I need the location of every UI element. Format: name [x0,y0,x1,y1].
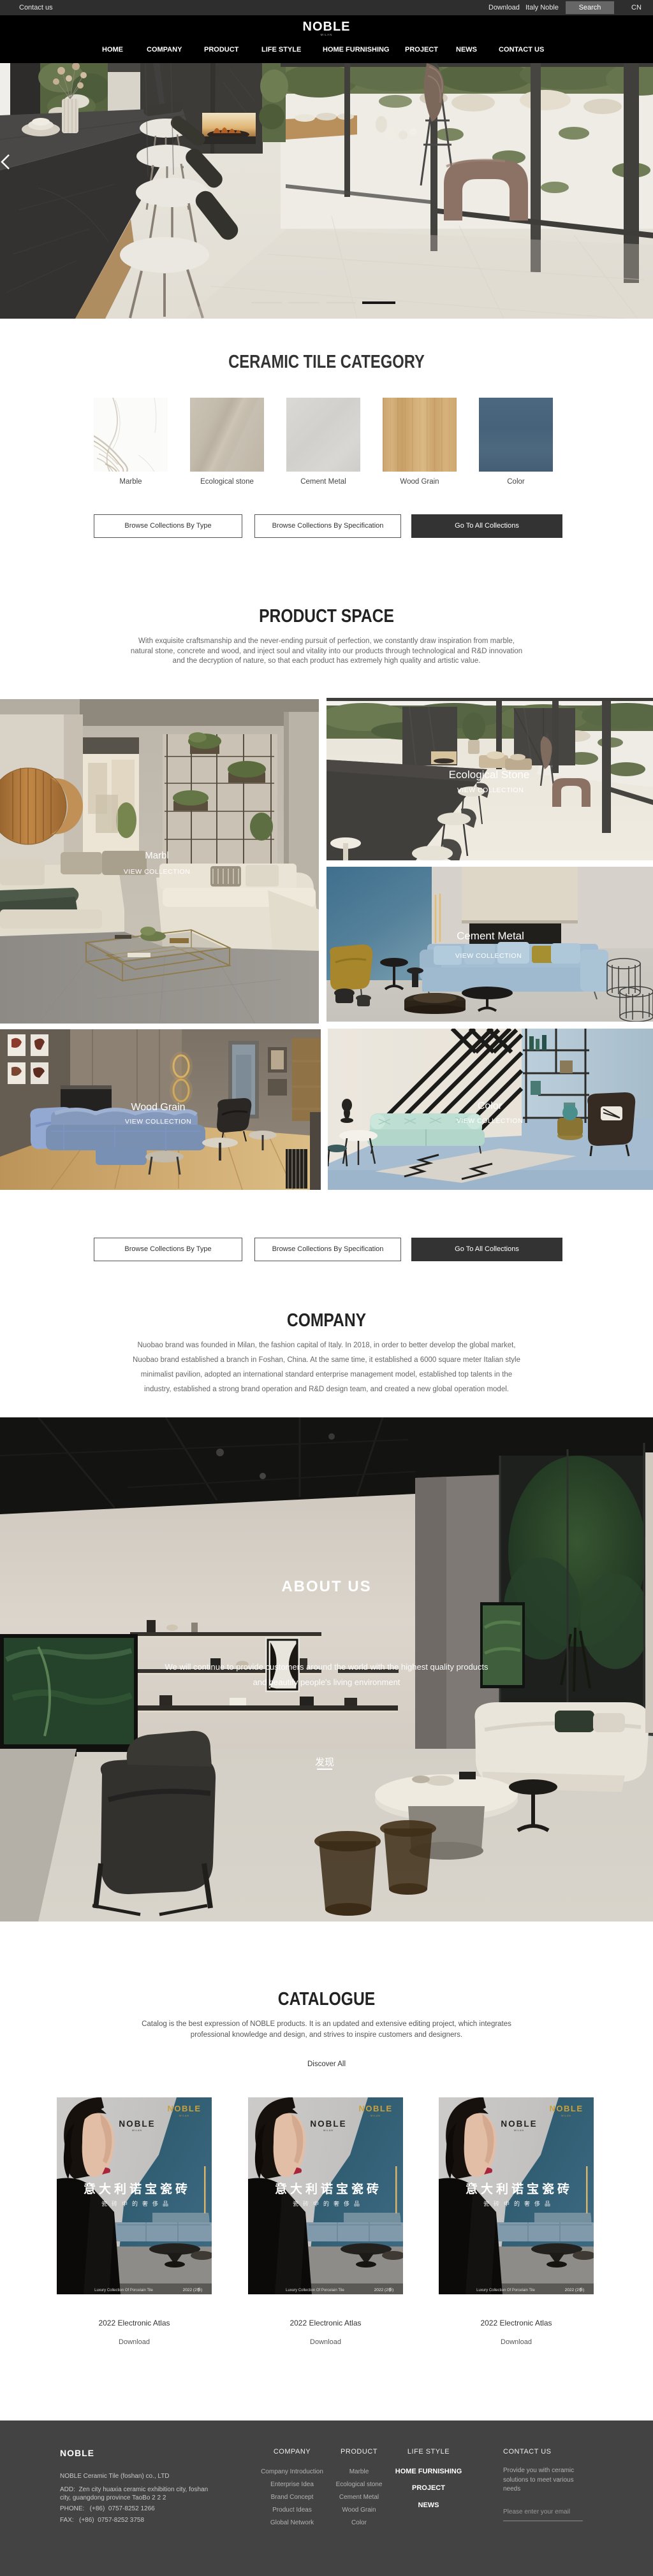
svg-text:VIEW COLLECTION: VIEW COLLECTION [457,1117,523,1125]
svg-text:VIEW COLLECTION: VIEW COLLECTION [125,1118,191,1125]
svg-text:Wood Grain: Wood Grain [131,1102,185,1113]
svg-text:Marbl: Marbl [145,850,169,861]
svg-text:We will continue to provide cu: We will continue to provide customers ar… [165,1662,488,1672]
svg-text:Color: Color [478,1101,503,1111]
svg-text:and beautify people's living e: and beautify people's living environment [253,1677,400,1687]
svg-text:VIEW COLLECTION: VIEW COLLECTION [455,952,522,960]
svg-text:Ecological Stone: Ecological Stone [449,769,530,781]
svg-text:VIEW COLLECTION: VIEW COLLECTION [124,868,190,876]
svg-text:Cement Metal: Cement Metal [457,930,524,942]
svg-text:ABOUT US: ABOUT US [281,1578,371,1595]
svg-text:VIEW COLLECTION: VIEW COLLECTION [457,786,524,794]
svg-text:发现: 发现 [315,1757,334,1768]
